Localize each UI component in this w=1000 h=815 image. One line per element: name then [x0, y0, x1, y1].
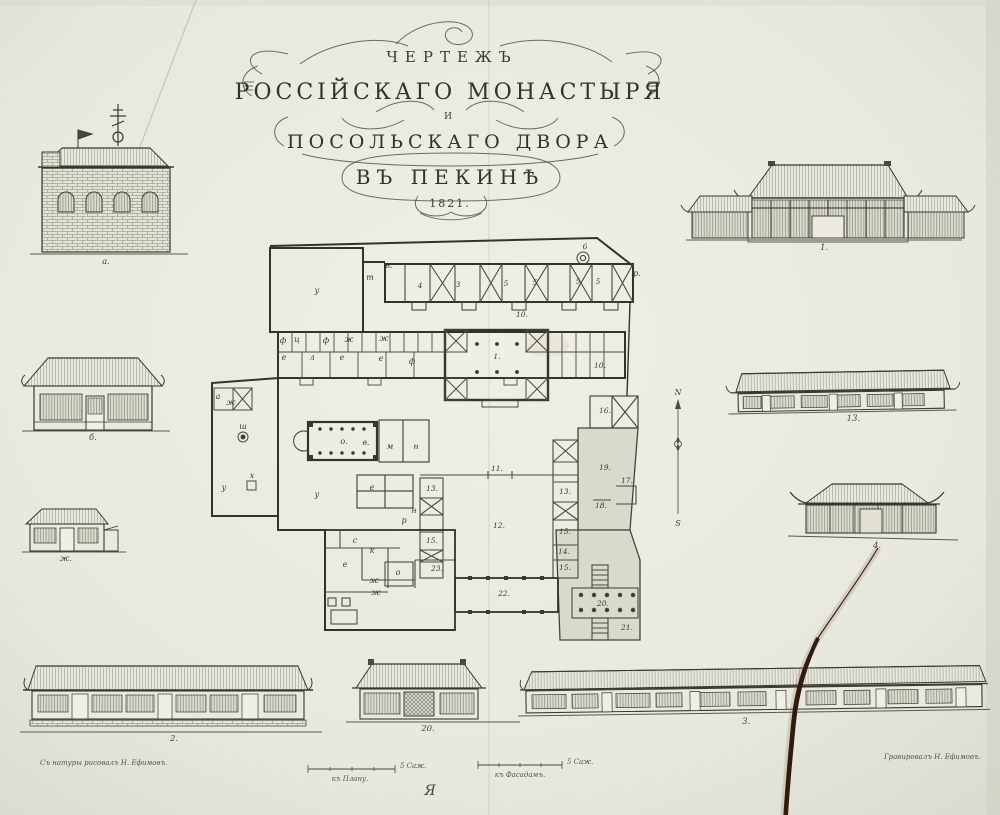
title-line2: РОССІЙСКАГО МОНАСТЫРЯ: [235, 77, 666, 105]
plan-label-у: у: [314, 286, 320, 295]
plan-label-а: а: [216, 392, 221, 401]
plan-label-н: н: [411, 506, 416, 515]
plan-label-14.: 14.: [558, 547, 570, 556]
engraved-plate-1821: ЧЕРТЕЖЪ РОССІЙСКАГО МОНАСТЫРЯ И ПОСОЛЬСК…: [0, 0, 1000, 815]
pavilion-south-label: 20.: [420, 724, 435, 734]
plan-label-22.: 22.: [497, 589, 510, 598]
compass-south-label: S: [675, 519, 681, 528]
title-line1: ЧЕРТЕЖЪ: [386, 48, 517, 66]
plan-label-р.: р.: [633, 269, 641, 278]
plan-label-ж: ж: [371, 588, 380, 597]
plan-label-с: с: [353, 536, 358, 545]
credit-artist: Съ натуры рисовалъ Н. Ефимовъ.: [40, 759, 168, 767]
plan-label-ж: ж: [379, 334, 388, 343]
long-southwest-label: 2.: [169, 734, 178, 744]
pavilion-main-label: 1.: [820, 243, 828, 253]
plan-label-е: е: [343, 560, 348, 569]
plan-label-21.: 21.: [620, 623, 633, 632]
scale-facade-unit: 5 Саж.: [567, 758, 593, 766]
plan-label-ш: ш: [239, 422, 247, 431]
plan-label-ф: ф: [409, 357, 415, 366]
plan-label-ф: ф: [323, 336, 329, 345]
plan-label-е: е: [379, 354, 384, 363]
plan-label-у: у: [314, 490, 320, 499]
church-label: а.: [102, 257, 110, 267]
scale-plan-caption: къ Плану.: [332, 775, 369, 783]
plan-label-4: 4: [417, 281, 423, 290]
house-label: б.: [89, 432, 97, 443]
plan-label-н: н: [413, 442, 418, 451]
plan-label-у: у: [221, 483, 227, 492]
plan-label-12.: 12.: [493, 521, 505, 530]
credit-engraver: Гравировалъ Н. Ефимовъ.: [883, 753, 981, 761]
plan-label-ж: ж: [226, 398, 235, 407]
plan-label-15.: 15.: [426, 536, 438, 545]
plan-label-ѳ.: ѳ.: [363, 438, 370, 447]
compass-north-label: N: [674, 388, 683, 397]
plan-label-е: е: [282, 353, 287, 362]
plan-label-5: 5: [576, 277, 581, 286]
plate-drawing: ЧЕРТЕЖЪ РОССІЙСКАГО МОНАСТЫРЯ И ПОСОЛЬСК…: [0, 0, 1000, 815]
plan-label-л: л: [309, 353, 314, 362]
plan-label-е: е: [340, 353, 345, 362]
plan-label-17.: 17.: [621, 476, 633, 485]
plan-label-о.: о.: [340, 437, 347, 446]
printer-mark: Я: [423, 783, 436, 799]
plan-label-ф: ф: [280, 336, 286, 345]
plan-label-ц: ц: [294, 335, 300, 344]
elevation-long-southwest: 2.: [20, 666, 322, 744]
scale-facade-caption: къ Фасадамъ.: [495, 771, 545, 779]
plan-label-5: 5: [504, 279, 509, 288]
plan-label-16.: 16.: [599, 406, 611, 415]
plan-label-ж: ж: [344, 335, 353, 344]
plan-label-3: 3: [456, 280, 461, 289]
long-east-label: 13.: [847, 414, 861, 424]
plan-label-5: 5: [533, 278, 538, 287]
plan-label-18.: 18.: [595, 501, 607, 510]
plan-label-10.: 10.: [516, 310, 528, 319]
title-line4: ПОСОЛЬСКАГО ДВОРА: [287, 131, 613, 153]
paper-right-edge: [986, 0, 1000, 815]
plan-label-м: м: [387, 442, 394, 451]
plan-label-15.: 15.: [559, 563, 571, 572]
long-south-label: 3.: [742, 717, 750, 727]
plan-label-11.: 11.: [491, 464, 503, 473]
plan-label-15.: 15.: [559, 527, 571, 536]
plan-label-10.: 10.: [594, 361, 606, 370]
plan-label-т: т: [366, 273, 374, 282]
plan-label-в.: в.: [385, 261, 392, 270]
scale-plan-unit: 5 Саж.: [400, 762, 426, 770]
plan-label-13.: 13.: [426, 484, 438, 493]
plan-label-19.: 19.: [599, 463, 611, 472]
shed-label: ж.: [60, 554, 72, 564]
plan-label-1.: 1.: [493, 352, 500, 361]
plan-label-р: р: [401, 516, 406, 525]
title-line3: И: [444, 112, 454, 122]
plan-label-13.: 13.: [559, 487, 571, 496]
plan-label-6: 6: [583, 242, 588, 251]
plan-label-к: к: [370, 546, 375, 555]
plan-label-е: е: [370, 483, 375, 492]
plan-label-23.: 23.: [430, 564, 443, 573]
plan-label-5: 5: [596, 277, 601, 286]
title-year: 1821.: [429, 197, 471, 210]
plan-label-о: о: [396, 568, 401, 577]
paper-top-edge: [0, 0, 1000, 6]
plan-label-20.: 20.: [596, 599, 609, 608]
title-line5: ВЪ ПЕКИНѢ: [356, 165, 545, 189]
plan-label-х: х: [250, 471, 255, 480]
elevation-house: б.: [22, 358, 170, 443]
plan-label-ж: ж: [369, 576, 378, 585]
